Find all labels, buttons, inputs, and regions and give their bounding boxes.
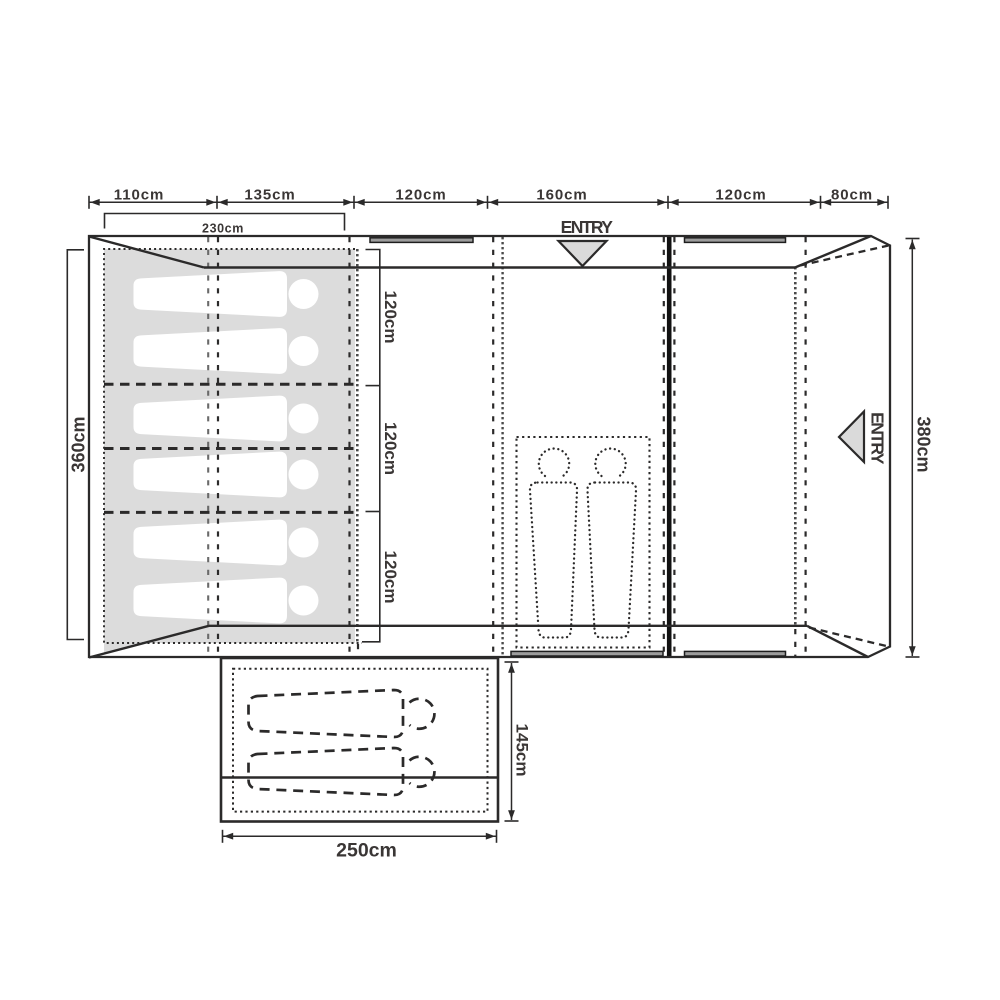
svg-text:110cm: 110cm bbox=[114, 187, 164, 204]
svg-text:160cm: 160cm bbox=[536, 187, 587, 204]
svg-text:120cm: 120cm bbox=[715, 187, 766, 204]
svg-text:230cm: 230cm bbox=[202, 222, 244, 236]
svg-text:250cm: 250cm bbox=[336, 840, 397, 862]
svg-text:80cm: 80cm bbox=[831, 187, 873, 204]
svg-text:ENTRY: ENTRY bbox=[561, 217, 614, 237]
svg-text:120cm: 120cm bbox=[381, 291, 400, 344]
svg-text:145cm: 145cm bbox=[513, 724, 532, 777]
svg-text:380cm: 380cm bbox=[914, 416, 934, 472]
svg-text:120cm: 120cm bbox=[381, 551, 400, 604]
svg-text:120cm: 120cm bbox=[381, 422, 400, 475]
svg-text:ENTRY: ENTRY bbox=[868, 412, 888, 465]
svg-text:135cm: 135cm bbox=[244, 187, 295, 204]
svg-text:360cm: 360cm bbox=[69, 416, 89, 472]
svg-text:120cm: 120cm bbox=[395, 187, 446, 204]
